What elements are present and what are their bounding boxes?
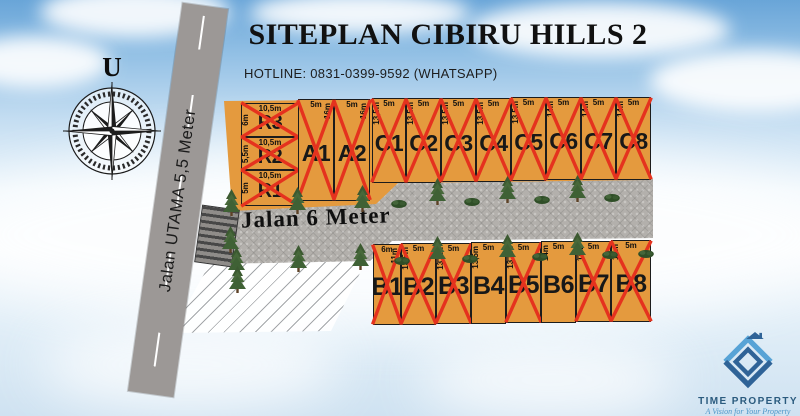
lot-B5: 5m13,5mB5: [506, 242, 541, 323]
sold-x-mark: [333, 98, 371, 202]
lot-B3: 5m13,5mB3: [436, 243, 471, 324]
sold-x-mark: [240, 136, 300, 171]
lot-R1: 10,5m5mR1: [241, 170, 299, 206]
compass-rose-icon: [62, 81, 162, 181]
brand-logo: TIME PROPERTY A Vision for Your Property: [698, 331, 798, 416]
compass-star: [64, 83, 160, 179]
lot-C6: 5m14mC6: [546, 97, 581, 180]
sold-x-mark: [580, 96, 617, 181]
entrance-gate: [194, 205, 240, 268]
logo-brand-text: TIME PROPERTY: [698, 396, 798, 407]
hotline-text: HOTLINE: 0831-0399-9592 (WHATSAPP): [244, 66, 497, 81]
lot-A2: 5m16mA2: [334, 99, 370, 201]
lot-A1: 5m16mA1: [298, 99, 334, 201]
sold-x-mark: [240, 169, 300, 207]
lot-B6: 5m14mB6: [541, 241, 576, 323]
lot-B8: 5m14mB8: [611, 240, 651, 322]
lot-name-label: B4: [473, 268, 504, 299]
lot-R2: 10,5m5,5mR2: [241, 137, 299, 170]
sold-x-mark: [435, 242, 472, 325]
sold-x-mark: [372, 243, 402, 326]
logo-emblem-icon: [720, 331, 776, 389]
sold-x-mark: [610, 239, 652, 323]
lot-depth-label: 14m: [542, 245, 551, 261]
lot-C8: 5m14mC8: [616, 97, 651, 180]
sold-x-mark: [545, 96, 582, 181]
lot-C4: 5m13,5mC4: [476, 98, 511, 182]
siteplan-poster: Jalan UTAMA 5,5 Meter Jalan 6 Meter 10,5…: [0, 0, 800, 416]
lot-B7: 5m14mB7: [576, 241, 611, 322]
sold-x-mark: [371, 97, 407, 184]
sold-x-mark: [405, 97, 442, 184]
lot-C5: 5m13,5mC5: [511, 97, 546, 181]
north-label: U: [57, 54, 167, 81]
lot-R3: 10,5m6mR3: [241, 103, 299, 137]
lot-B2: 5m13,5mB2: [401, 243, 436, 325]
lot-B1: 6m11mB1: [373, 244, 401, 325]
sold-x-mark: [575, 240, 612, 323]
lot-C7: 5m14mC7: [581, 97, 616, 180]
sold-x-mark: [240, 102, 300, 138]
lot-name-label: B6: [543, 267, 574, 298]
sold-x-mark: [440, 97, 477, 183]
lot-B4: 5m13,5mB4: [471, 242, 506, 324]
lot-depth-label: 13,5m: [472, 246, 481, 269]
sold-x-mark: [297, 98, 335, 202]
lot-C2: 5m13,5mC2: [406, 98, 441, 183]
sold-x-mark: [505, 241, 542, 324]
lot-C3: 5m13,5mC3: [441, 98, 476, 182]
compass: U: [57, 54, 167, 186]
page-title: SITEPLAN CIBIRU HILLS 2: [236, 18, 660, 52]
logo-tagline-text: A Vision for Your Property: [698, 407, 798, 416]
sold-x-mark: [615, 96, 652, 181]
lot-C1: 5m13,5mC1: [372, 98, 406, 183]
sold-x-mark: [510, 96, 547, 182]
sold-x-mark: [400, 242, 437, 326]
sold-x-mark: [475, 97, 512, 183]
